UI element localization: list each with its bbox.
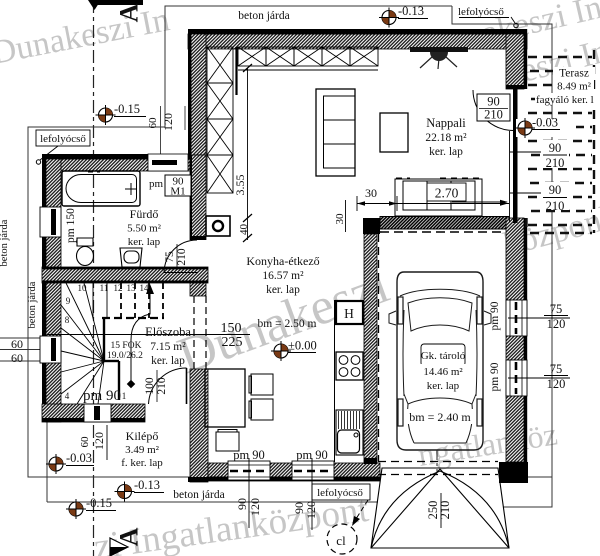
- svg-text:Kilépő: Kilépő: [126, 429, 159, 443]
- svg-text:10: 10: [78, 283, 88, 293]
- svg-text:225: 225: [222, 335, 243, 350]
- svg-text:120: 120: [92, 432, 106, 450]
- svg-text:Gk. tároló: Gk. tároló: [421, 350, 466, 362]
- svg-text:30: 30: [334, 213, 346, 225]
- svg-text:lefolyócső: lefolyócső: [40, 133, 86, 145]
- svg-text:ker. lap: ker. lap: [128, 236, 161, 248]
- svg-text:40: 40: [238, 224, 250, 236]
- svg-text:-0.13: -0.13: [398, 4, 424, 18]
- svg-text:14: 14: [140, 283, 150, 293]
- svg-text:2.70: 2.70: [435, 186, 459, 201]
- svg-text:90: 90: [235, 498, 249, 510]
- svg-text:15 FOK: 15 FOK: [111, 341, 142, 351]
- svg-text:8.49 m²: 8.49 m²: [557, 81, 592, 93]
- svg-text:8: 8: [65, 315, 70, 325]
- svg-text:beton járda: beton járda: [173, 489, 224, 501]
- svg-text:lefolyócső: lefolyócső: [317, 487, 363, 499]
- svg-text:210: 210: [438, 501, 452, 520]
- svg-text:Nappali: Nappali: [426, 116, 466, 130]
- svg-text:Előszoba: Előszoba: [145, 325, 191, 339]
- svg-text:16.57 m²: 16.57 m²: [262, 270, 304, 282]
- svg-text:-0.03: -0.03: [532, 116, 558, 130]
- svg-text:Terasz: Terasz: [559, 68, 589, 80]
- svg-text:120: 120: [304, 501, 318, 519]
- svg-text:7.15 m²: 7.15 m²: [150, 341, 186, 353]
- svg-text:-0.03: -0.03: [66, 451, 92, 465]
- svg-text:3.49 m²: 3.49 m²: [125, 444, 160, 456]
- svg-text:60: 60: [79, 436, 91, 448]
- svg-text:210: 210: [546, 199, 565, 213]
- svg-text:4: 4: [65, 391, 70, 401]
- svg-text:19.0/26.2: 19.0/26.2: [107, 351, 143, 361]
- svg-text:bm = 2.40 m: bm = 2.40 m: [409, 410, 471, 424]
- svg-text:cl: cl: [336, 533, 346, 548]
- svg-text:pm 90: pm 90: [489, 301, 501, 330]
- svg-text:pm 90: pm 90: [489, 362, 501, 391]
- svg-text:lefolyócső: lefolyócső: [458, 6, 504, 18]
- svg-text:1: 1: [122, 391, 127, 401]
- svg-text:90: 90: [487, 95, 500, 109]
- svg-text:ker. lap: ker. lap: [429, 146, 463, 158]
- svg-text:9: 9: [66, 296, 71, 306]
- svg-text:-0.13: -0.13: [134, 478, 160, 492]
- svg-text:13: 13: [127, 283, 137, 293]
- svg-text:60: 60: [11, 337, 23, 351]
- svg-text:14.46 m²: 14.46 m²: [423, 366, 463, 378]
- svg-text:30: 30: [365, 186, 377, 200]
- svg-text:-0.15: -0.15: [86, 496, 112, 510]
- svg-text:ker. lap: ker. lap: [151, 355, 185, 367]
- svg-text:pm: pm: [149, 178, 164, 190]
- svg-text:-0.15: -0.15: [114, 102, 140, 116]
- svg-text:12: 12: [114, 283, 123, 293]
- svg-text:3.55: 3.55: [233, 175, 247, 196]
- svg-text:M1: M1: [170, 186, 185, 198]
- svg-text:90: 90: [549, 141, 562, 155]
- svg-text:75: 75: [550, 362, 563, 376]
- svg-text:120: 120: [248, 498, 262, 516]
- svg-text:60: 60: [11, 351, 23, 365]
- svg-text:A: A: [115, 3, 144, 22]
- svg-text:beton járda: beton járda: [27, 281, 38, 328]
- svg-text:100: 100: [144, 377, 156, 395]
- svg-text:210: 210: [546, 156, 565, 170]
- svg-text:Fürdő: Fürdő: [130, 207, 159, 221]
- svg-text:f. ker. lap: f. ker. lap: [121, 457, 163, 469]
- svg-text:60: 60: [147, 117, 159, 129]
- svg-text:120: 120: [161, 113, 175, 131]
- svg-text:120: 120: [547, 317, 566, 331]
- svg-text:120: 120: [547, 377, 566, 391]
- svg-text:beton járda: beton járda: [0, 219, 10, 266]
- svg-text:90: 90: [549, 183, 562, 197]
- svg-text:5.50 m²: 5.50 m²: [127, 223, 162, 235]
- svg-text:22.18 m²: 22.18 m²: [425, 132, 467, 144]
- svg-text:210: 210: [176, 248, 188, 266]
- svg-text:bm = 2.50 m: bm = 2.50 m: [258, 318, 317, 330]
- svg-text:11: 11: [100, 283, 109, 293]
- svg-text:150: 150: [221, 321, 242, 336]
- svg-text:Konyha-étkező: Konyha-étkező: [246, 254, 319, 268]
- svg-text:75: 75: [164, 251, 176, 263]
- svg-text:ker. lap: ker. lap: [427, 380, 460, 392]
- svg-text:fagyáló ker. l: fagyáló ker. l: [536, 94, 594, 106]
- svg-text:pm 150: pm 150: [65, 208, 77, 243]
- svg-text:75: 75: [550, 302, 563, 316]
- svg-text:210: 210: [156, 377, 168, 395]
- svg-text:ker. lap: ker. lap: [266, 284, 300, 296]
- svg-text:H: H: [344, 306, 354, 321]
- svg-text:±0.00: ±0.00: [288, 339, 317, 353]
- svg-text:beton járda: beton járda: [238, 10, 289, 22]
- svg-text:pm 90: pm 90: [83, 388, 121, 404]
- svg-text:210: 210: [484, 108, 503, 122]
